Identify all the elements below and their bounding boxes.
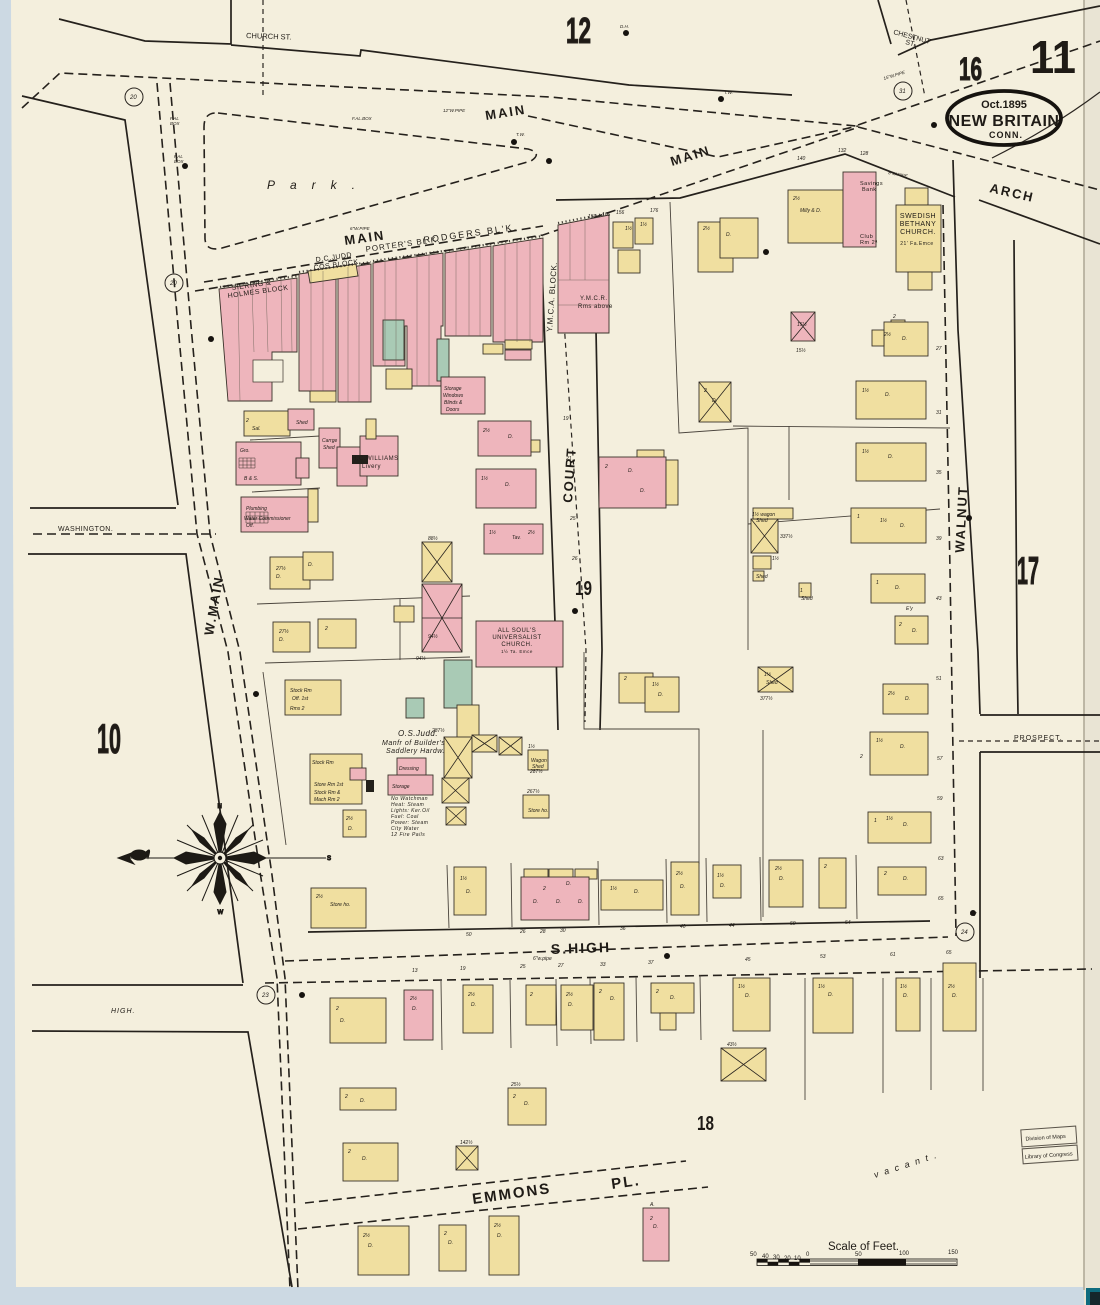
svg-text:D.: D. bbox=[745, 993, 750, 999]
svg-text:59: 59 bbox=[937, 796, 943, 802]
svg-text:1½: 1½ bbox=[862, 448, 870, 455]
svg-text:D.: D. bbox=[471, 1002, 476, 1008]
svg-text:1½ wagon: 1½ wagon bbox=[752, 511, 775, 518]
svg-text:2: 2 bbox=[623, 676, 627, 682]
svg-text:37: 37 bbox=[648, 960, 654, 966]
svg-text:25½: 25½ bbox=[510, 1081, 522, 1088]
svg-text:24: 24 bbox=[960, 930, 968, 936]
svg-text:1: 1 bbox=[874, 818, 877, 824]
svg-text:1½: 1½ bbox=[460, 875, 468, 882]
svg-text:27½: 27½ bbox=[278, 628, 290, 635]
svg-text:Sal.: Sal. bbox=[252, 426, 261, 432]
svg-text:D.: D. bbox=[566, 881, 571, 887]
svg-text:Rms above: Rms above bbox=[578, 304, 613, 310]
svg-text:45: 45 bbox=[745, 957, 751, 963]
svg-text:Rm 2ª: Rm 2ª bbox=[860, 239, 878, 246]
svg-text:D.: D. bbox=[276, 574, 281, 580]
svg-text:65: 65 bbox=[946, 950, 952, 956]
svg-text:D.: D. bbox=[556, 899, 561, 905]
svg-text:D.: D. bbox=[524, 1101, 529, 1107]
svg-text:19: 19 bbox=[460, 966, 466, 972]
svg-text:D.: D. bbox=[508, 434, 513, 440]
svg-text:Stock Rm &: Stock Rm & bbox=[314, 790, 341, 796]
svg-text:28: 28 bbox=[539, 929, 546, 935]
svg-text:2: 2 bbox=[512, 1094, 516, 1100]
svg-text:54: 54 bbox=[845, 920, 851, 926]
svg-text:2: 2 bbox=[655, 989, 659, 995]
svg-text:10: 10 bbox=[97, 715, 121, 762]
svg-text:D.: D. bbox=[368, 1243, 373, 1249]
svg-text:150: 150 bbox=[588, 214, 597, 220]
svg-text:2: 2 bbox=[859, 754, 863, 760]
svg-text:88½: 88½ bbox=[428, 535, 439, 542]
svg-text:Dressing: Dressing bbox=[399, 766, 419, 772]
svg-text:1: 1 bbox=[876, 580, 879, 586]
svg-text:1½: 1½ bbox=[738, 983, 746, 990]
svg-text:15½: 15½ bbox=[796, 347, 807, 354]
svg-text:D.: D. bbox=[952, 993, 957, 999]
svg-text:Manfr of Builder's: Manfr of Builder's bbox=[382, 740, 445, 747]
svg-text:Off. 1st: Off. 1st bbox=[292, 696, 309, 702]
svg-text:D.: D. bbox=[634, 889, 639, 895]
svg-text:2: 2 bbox=[883, 871, 887, 877]
svg-text:D.: D. bbox=[578, 899, 583, 905]
svg-text:27: 27 bbox=[935, 346, 942, 352]
svg-text:2: 2 bbox=[598, 989, 602, 995]
svg-text:377½: 377½ bbox=[760, 695, 773, 702]
svg-text:D.: D. bbox=[726, 232, 731, 238]
svg-text:140: 140 bbox=[797, 156, 806, 162]
svg-text:Carrge: Carrge bbox=[322, 438, 338, 444]
svg-text:166: 166 bbox=[602, 212, 611, 218]
svg-text:27½: 27½ bbox=[275, 565, 287, 572]
svg-text:2: 2 bbox=[245, 418, 249, 424]
svg-text:1½: 1½ bbox=[876, 737, 884, 744]
svg-text:2½: 2½ bbox=[409, 995, 418, 1002]
svg-text:2½: 2½ bbox=[947, 983, 956, 990]
svg-text:1: 1 bbox=[857, 514, 860, 520]
svg-text:A.: A. bbox=[649, 1202, 655, 1208]
svg-text:2: 2 bbox=[703, 388, 707, 394]
svg-text:Gro.: Gro. bbox=[240, 448, 250, 454]
svg-text:D.: D. bbox=[885, 392, 890, 398]
svg-text:27: 27 bbox=[557, 963, 564, 969]
svg-text:1½: 1½ bbox=[818, 983, 826, 990]
svg-text:267½: 267½ bbox=[526, 788, 540, 795]
svg-text:D.: D. bbox=[905, 696, 910, 702]
svg-text:31: 31 bbox=[936, 410, 942, 416]
svg-text:ALL SOUL'S: ALL SOUL'S bbox=[498, 628, 537, 634]
svg-text:25: 25 bbox=[519, 964, 526, 970]
svg-text:T.W.: T.W. bbox=[516, 132, 525, 137]
svg-text:F.AL.BOX: F.AL.BOX bbox=[352, 116, 373, 121]
svg-text:11: 11 bbox=[1030, 31, 1076, 83]
svg-text:D.: D. bbox=[279, 637, 284, 643]
svg-text:2½: 2½ bbox=[493, 1222, 502, 1229]
svg-text:50: 50 bbox=[790, 921, 796, 927]
svg-text:2: 2 bbox=[892, 314, 896, 320]
svg-text:2: 2 bbox=[344, 1094, 348, 1100]
svg-text:12: 12 bbox=[566, 10, 591, 51]
svg-text:1½: 1½ bbox=[481, 475, 489, 482]
svg-text:D.: D. bbox=[902, 336, 907, 342]
svg-text:6"W.PIPE: 6"W.PIPE bbox=[350, 226, 371, 231]
svg-text:BETHANY: BETHANY bbox=[900, 221, 937, 228]
svg-text:1½: 1½ bbox=[900, 983, 908, 990]
svg-text:21: 21 bbox=[565, 456, 572, 462]
svg-text:50: 50 bbox=[466, 932, 472, 938]
svg-text:D.: D. bbox=[466, 889, 471, 895]
svg-text:12 Fire Pails: 12 Fire Pails bbox=[391, 832, 425, 838]
svg-text:HIGH.: HIGH. bbox=[111, 1008, 135, 1015]
svg-text:Store ho.: Store ho. bbox=[528, 808, 548, 814]
svg-text:2: 2 bbox=[542, 886, 546, 892]
svg-text:D.: D. bbox=[670, 995, 675, 1001]
svg-text:D.: D. bbox=[903, 822, 908, 828]
svg-text:D.: D. bbox=[505, 482, 510, 488]
svg-text:2: 2 bbox=[443, 1231, 447, 1237]
svg-text:40: 40 bbox=[680, 924, 686, 930]
svg-text:Bank: Bank bbox=[862, 187, 877, 193]
svg-text:Shed: Shed bbox=[766, 680, 778, 686]
svg-text:B & S.: B & S. bbox=[244, 476, 258, 482]
svg-text:D.: D. bbox=[610, 996, 615, 1002]
svg-text:128: 128 bbox=[860, 151, 869, 157]
svg-text:O.S.Judd.: O.S.Judd. bbox=[398, 729, 438, 738]
svg-text:Shed: Shed bbox=[801, 596, 813, 602]
svg-text:Stock Rm: Stock Rm bbox=[290, 688, 312, 694]
svg-text:2½: 2½ bbox=[774, 865, 783, 872]
svg-text:2½: 2½ bbox=[467, 991, 476, 998]
svg-text:D.: D. bbox=[912, 628, 917, 634]
svg-text:N: N bbox=[218, 804, 222, 810]
svg-text:2½: 2½ bbox=[883, 331, 892, 338]
svg-text:36: 36 bbox=[620, 926, 626, 932]
svg-text:D.: D. bbox=[895, 585, 900, 591]
svg-text:D.: D. bbox=[362, 1156, 367, 1162]
svg-text:Livery: Livery bbox=[362, 464, 381, 470]
svg-text:NEW BRITAIN: NEW BRITAIN bbox=[949, 113, 1060, 130]
svg-text:26: 26 bbox=[519, 929, 526, 935]
svg-text:94½: 94½ bbox=[416, 655, 427, 662]
svg-text:63: 63 bbox=[938, 856, 944, 862]
svg-text:2: 2 bbox=[529, 992, 533, 998]
svg-text:Shed: Shed bbox=[756, 518, 768, 524]
svg-text:51: 51 bbox=[936, 676, 942, 682]
svg-text:W: W bbox=[218, 910, 224, 916]
svg-text:Doors: Doors bbox=[446, 407, 460, 413]
svg-text:S.HIGH: S.HIGH bbox=[551, 939, 612, 957]
svg-text:Storage: Storage bbox=[392, 784, 410, 790]
svg-text:44: 44 bbox=[729, 923, 735, 929]
svg-text:Saddlery Hardw.: Saddlery Hardw. bbox=[386, 748, 445, 755]
svg-text:Store ho.: Store ho. bbox=[330, 902, 350, 908]
svg-text:Tav.: Tav. bbox=[512, 535, 521, 541]
svg-text:12"W.PIPE: 12"W.PIPE bbox=[443, 108, 466, 113]
svg-text:2½: 2½ bbox=[362, 1232, 371, 1239]
svg-text:1½: 1½ bbox=[640, 221, 648, 228]
svg-text:46': 46' bbox=[970, 912, 978, 918]
svg-text:Milly & D.: Milly & D. bbox=[800, 208, 821, 214]
svg-text:Plumbing: Plumbing bbox=[246, 506, 267, 512]
svg-text:Shed: Shed bbox=[756, 574, 768, 580]
svg-text:17: 17 bbox=[1017, 550, 1039, 593]
svg-text:2: 2 bbox=[324, 626, 328, 632]
svg-text:1½: 1½ bbox=[772, 555, 780, 562]
svg-text:43½: 43½ bbox=[727, 1041, 738, 1048]
svg-text:31: 31 bbox=[899, 89, 906, 95]
svg-text:94½: 94½ bbox=[428, 633, 439, 640]
svg-text:53: 53 bbox=[820, 954, 826, 960]
svg-text:2½: 2½ bbox=[345, 815, 354, 822]
svg-text:Store Rm 1st: Store Rm 1st bbox=[314, 782, 344, 788]
svg-text:1½: 1½ bbox=[862, 387, 870, 394]
svg-text:26: 26 bbox=[571, 556, 578, 562]
svg-text:D.: D. bbox=[412, 1006, 417, 1012]
svg-text:Rms 2: Rms 2 bbox=[290, 706, 305, 712]
svg-text:2½: 2½ bbox=[565, 991, 574, 998]
svg-text:1½: 1½ bbox=[489, 529, 497, 536]
svg-text:D.: D. bbox=[712, 398, 717, 404]
svg-text:BOX: BOX bbox=[170, 121, 181, 126]
svg-text:D.: D. bbox=[308, 562, 313, 568]
svg-text:Windows: Windows bbox=[443, 393, 464, 399]
svg-text:D.: D. bbox=[720, 883, 725, 889]
svg-text:50: 50 bbox=[855, 1252, 862, 1258]
svg-text:142½: 142½ bbox=[460, 1139, 473, 1146]
svg-text:Oct.1895: Oct.1895 bbox=[981, 99, 1027, 111]
svg-text:D.: D. bbox=[828, 992, 833, 998]
svg-text:D.: D. bbox=[568, 1002, 573, 1008]
svg-text:337½: 337½ bbox=[780, 533, 793, 540]
svg-text:61: 61 bbox=[890, 952, 896, 958]
svg-text:2: 2 bbox=[347, 1149, 351, 1155]
svg-text:2: 2 bbox=[604, 464, 608, 470]
svg-text:Mach Rm 2: Mach Rm 2 bbox=[314, 797, 340, 803]
svg-text:D.: D. bbox=[640, 488, 645, 494]
svg-text:2: 2 bbox=[898, 622, 902, 628]
svg-text:13: 13 bbox=[412, 968, 418, 974]
svg-text:1½: 1½ bbox=[652, 681, 660, 688]
svg-text:2½: 2½ bbox=[792, 195, 801, 202]
svg-text:1½: 1½ bbox=[764, 671, 772, 678]
svg-text:Shed: Shed bbox=[323, 445, 335, 451]
svg-text:50: 50 bbox=[750, 1252, 757, 1258]
svg-text:Scale of Feet.: Scale of Feet. bbox=[828, 1241, 899, 1253]
svg-text:1½: 1½ bbox=[880, 517, 888, 524]
svg-text:D.: D. bbox=[497, 1233, 502, 1239]
svg-text:2½: 2½ bbox=[527, 529, 536, 536]
svg-text:65: 65 bbox=[938, 896, 944, 902]
svg-text:BOX: BOX bbox=[174, 159, 185, 164]
svg-text:1: 1 bbox=[800, 588, 803, 594]
svg-text:D.: D. bbox=[900, 744, 905, 750]
svg-text:D.: D. bbox=[348, 826, 353, 832]
svg-text:H.C.WILLIAMS: H.C.WILLIAMS bbox=[352, 456, 399, 462]
svg-text:D.: D. bbox=[903, 876, 908, 882]
svg-text:D.: D. bbox=[360, 1098, 365, 1104]
svg-text:D.H.: D.H. bbox=[620, 24, 629, 29]
svg-text:35: 35 bbox=[936, 470, 942, 476]
svg-text:S: S bbox=[327, 856, 331, 862]
svg-text:18: 18 bbox=[697, 1113, 714, 1135]
svg-text:156: 156 bbox=[616, 210, 625, 216]
svg-text:Park.: Park. bbox=[267, 178, 370, 192]
svg-text:D.: D. bbox=[903, 993, 908, 999]
svg-text:20: 20 bbox=[129, 95, 137, 101]
svg-text:Blinds &: Blinds & bbox=[444, 400, 463, 406]
svg-text:Shed: Shed bbox=[296, 420, 308, 426]
svg-text:19: 19 bbox=[563, 416, 569, 422]
svg-text:2½: 2½ bbox=[675, 870, 684, 877]
svg-text:2: 2 bbox=[335, 1006, 339, 1012]
svg-text:21' Fa.Emce: 21' Fa.Emce bbox=[900, 241, 933, 247]
svg-text:Off.: Off. bbox=[246, 523, 254, 529]
svg-text:6"w.pipe: 6"w.pipe bbox=[533, 956, 552, 962]
svg-text:D.: D. bbox=[448, 1240, 453, 1246]
svg-text:T.W.: T.W. bbox=[724, 90, 733, 95]
svg-text:19: 19 bbox=[575, 578, 592, 600]
svg-text:43: 43 bbox=[936, 596, 942, 602]
svg-text:E'y: E'y bbox=[906, 606, 913, 612]
svg-text:2½: 2½ bbox=[315, 893, 324, 900]
svg-text:2: 2 bbox=[649, 1216, 653, 1222]
svg-text:20: 20 bbox=[169, 281, 177, 287]
svg-text:1½: 1½ bbox=[528, 743, 536, 750]
svg-text:57: 57 bbox=[937, 756, 943, 762]
svg-text:100: 100 bbox=[899, 1251, 910, 1257]
svg-text:30: 30 bbox=[560, 928, 566, 934]
svg-text:D.: D. bbox=[653, 1224, 658, 1230]
svg-text:2½: 2½ bbox=[887, 690, 896, 697]
svg-text:D.: D. bbox=[900, 523, 905, 529]
svg-text:D.: D. bbox=[779, 876, 784, 882]
svg-text:25: 25 bbox=[569, 516, 576, 522]
svg-text:1½ Ta. Emce: 1½ Ta. Emce bbox=[501, 648, 533, 654]
svg-text:2: 2 bbox=[823, 864, 827, 870]
svg-text:Y.M.C.R.: Y.M.C.R. bbox=[580, 296, 608, 302]
svg-text:176: 176 bbox=[650, 208, 659, 214]
svg-text:SWEDISH: SWEDISH bbox=[900, 213, 936, 220]
svg-text:D.: D. bbox=[628, 468, 633, 474]
svg-text:CHURCH.: CHURCH. bbox=[501, 642, 532, 648]
svg-text:Stock Rm: Stock Rm bbox=[312, 760, 334, 766]
svg-text:CHURCH.: CHURCH. bbox=[900, 229, 936, 236]
svg-text:PROSPECT.: PROSPECT. bbox=[1014, 735, 1063, 742]
svg-text:D.: D. bbox=[680, 884, 685, 890]
svg-text:1½: 1½ bbox=[625, 225, 633, 232]
svg-text:2½: 2½ bbox=[482, 427, 491, 434]
svg-text:D.: D. bbox=[888, 454, 893, 460]
svg-text:132: 132 bbox=[838, 148, 847, 154]
svg-text:150: 150 bbox=[948, 1250, 959, 1256]
svg-text:1½: 1½ bbox=[886, 815, 894, 822]
svg-text:2½: 2½ bbox=[702, 225, 711, 232]
svg-text:CONN.: CONN. bbox=[989, 130, 1023, 140]
svg-text:CHURCH ST.: CHURCH ST. bbox=[246, 31, 292, 42]
svg-text:1½: 1½ bbox=[610, 885, 618, 892]
svg-text:Shed: Shed bbox=[532, 764, 544, 770]
svg-text:15½: 15½ bbox=[797, 321, 808, 328]
svg-text:D.: D. bbox=[533, 899, 538, 905]
svg-text:16: 16 bbox=[959, 51, 982, 87]
svg-text:Storage: Storage bbox=[444, 386, 462, 392]
svg-text:WASHINGTON.: WASHINGTON. bbox=[58, 526, 113, 533]
svg-text:D.: D. bbox=[658, 692, 663, 698]
svg-text:UNIVERSALIST: UNIVERSALIST bbox=[492, 635, 541, 641]
svg-text:D.: D. bbox=[340, 1018, 345, 1024]
svg-text:1½: 1½ bbox=[717, 872, 725, 879]
svg-text:Water Commissioner: Water Commissioner bbox=[244, 516, 291, 522]
svg-text:23: 23 bbox=[261, 993, 269, 999]
svg-text:33: 33 bbox=[600, 962, 606, 968]
svg-text:39: 39 bbox=[936, 536, 942, 542]
